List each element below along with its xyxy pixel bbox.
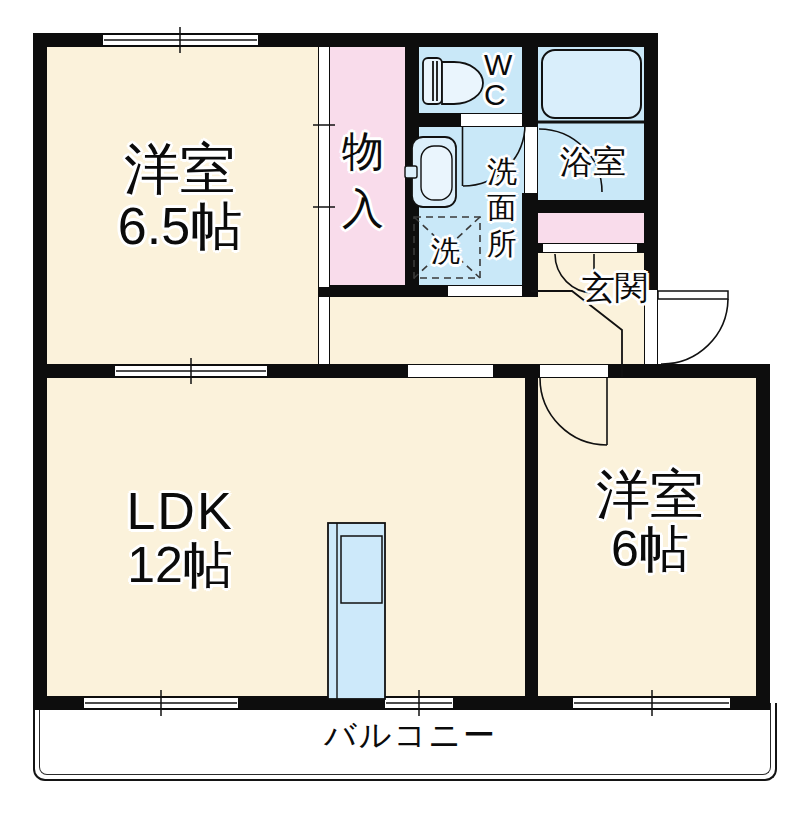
room-label-ldk: LDK 12帖 xyxy=(55,484,305,591)
room-name: LDK xyxy=(55,484,305,539)
room-label-storage: 物入 xyxy=(342,124,388,237)
window-ldk-balcony xyxy=(84,696,238,710)
room-size: 6.5帖 xyxy=(55,199,305,254)
door-opening-shoe-cabinet xyxy=(543,243,637,253)
room-name: 洋室 xyxy=(55,140,305,199)
opening-hall-washroom xyxy=(448,285,522,297)
door-opening-wc xyxy=(461,113,522,127)
window-room6-balcony xyxy=(573,696,730,710)
room-label-wc: WC xyxy=(484,50,516,110)
wall-wc-bottom xyxy=(419,113,461,127)
shoe-cabinet xyxy=(538,213,644,243)
wall-hall-north-west xyxy=(318,285,448,297)
doorway-room65-hall xyxy=(318,297,330,364)
door-opening-bathroom xyxy=(524,127,538,193)
wall-washroom-east xyxy=(522,193,538,297)
window-top-room65 xyxy=(103,33,258,47)
floor-plan: 洋室 6.5帖 物入 WC 洗面所 洗 浴室 玄関 LDK 12帖 洋室 6帖 … xyxy=(0,0,812,819)
label-washing-machine: 洗 xyxy=(431,236,460,266)
room-label-western-6: 洋室 6帖 xyxy=(555,466,745,575)
wall-storage-right xyxy=(405,47,419,297)
room-label-entrance: 玄関 xyxy=(577,271,653,306)
wall-wc-bath-divider xyxy=(522,33,538,127)
room-label-western-65: 洋室 6.5帖 xyxy=(55,140,305,253)
room-name: 洋室 xyxy=(555,466,745,523)
opening-hall-ldk xyxy=(408,364,493,378)
door-opening-room6 xyxy=(540,364,608,378)
window-ldk-balcony-small xyxy=(385,696,453,710)
room-size: 6帖 xyxy=(555,523,745,576)
wall-right-lower xyxy=(756,364,770,710)
sliding-door-storage xyxy=(318,47,330,287)
sliding-door-room65-ldk xyxy=(115,364,267,378)
room-label-bathroom: 浴室 xyxy=(551,145,635,180)
wall-bathroom-bottom xyxy=(538,200,658,213)
room-label-washroom: 洗面所 xyxy=(487,154,519,262)
room-size: 12帖 xyxy=(55,539,305,592)
label-balcony: バルコニー xyxy=(318,719,503,753)
wall-ldk-divider xyxy=(525,378,538,696)
